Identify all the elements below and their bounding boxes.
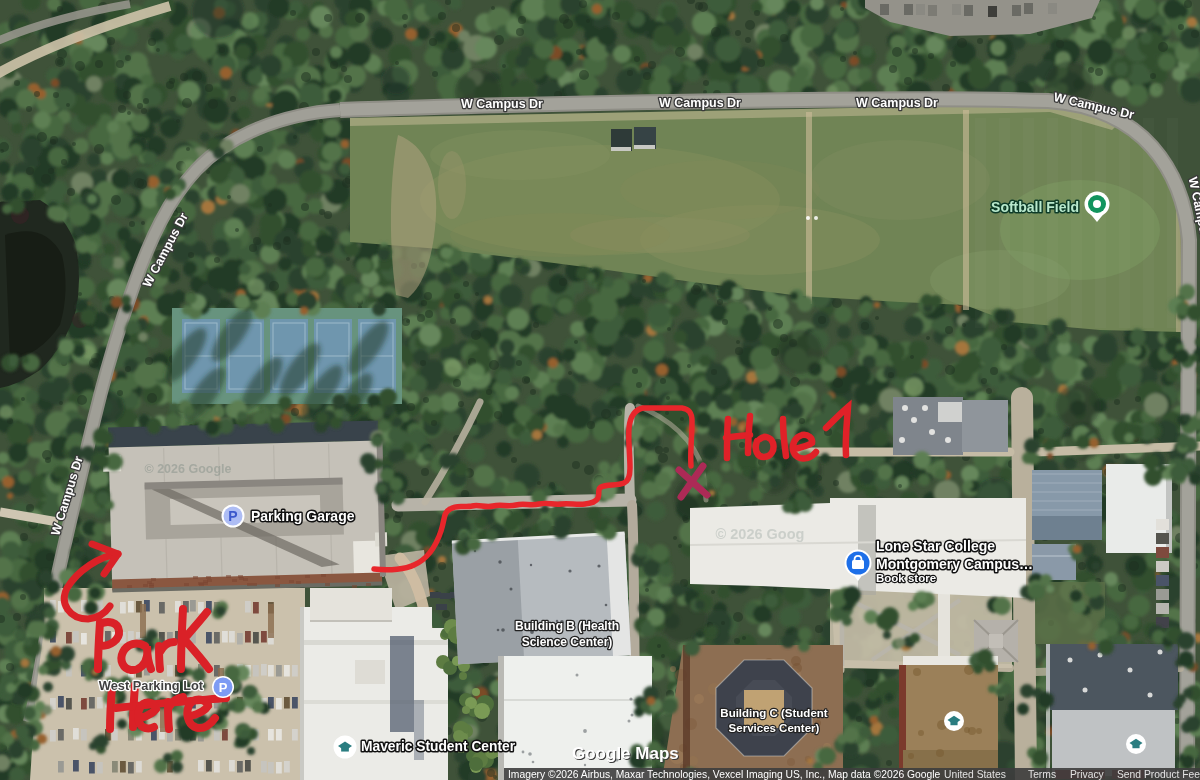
svg-text:Services Center): Services Center) xyxy=(729,722,820,734)
svg-text:Send Product Feedback: Send Product Feedback xyxy=(1117,769,1200,780)
svg-text:Parking Garage: Parking Garage xyxy=(251,508,355,524)
svg-text:Privacy: Privacy xyxy=(1070,769,1105,780)
svg-text:Building C (Student: Building C (Student xyxy=(720,707,827,719)
svg-text:Lone Star College: Lone Star College xyxy=(876,538,995,554)
svg-text:Maveric Student Center: Maveric Student Center xyxy=(361,739,516,754)
svg-text:Softball Field: Softball Field xyxy=(991,199,1079,215)
svg-text:Imagery ©2026 Airbus, Maxar Te: Imagery ©2026 Airbus, Maxar Technologies… xyxy=(508,769,941,780)
svg-text:Montgomery Campus…: Montgomery Campus… xyxy=(876,556,1033,572)
svg-text:Book store: Book store xyxy=(876,572,936,584)
svg-text:W Campus Dr: W Campus Dr xyxy=(461,97,543,111)
svg-text:© 2026 Google: © 2026 Google xyxy=(144,462,231,476)
svg-text:United States: United States xyxy=(944,769,1006,780)
svg-text:West Parking Lot: West Parking Lot xyxy=(99,678,204,693)
svg-text:Google Maps: Google Maps xyxy=(572,744,679,763)
svg-text:P: P xyxy=(219,680,228,695)
svg-text:© 2026 Goog: © 2026 Goog xyxy=(716,526,805,542)
svg-text:W Campus Dr: W Campus Dr xyxy=(856,96,938,110)
svg-text:W Campus Dr: W Campus Dr xyxy=(659,96,741,110)
svg-text:P: P xyxy=(228,508,237,524)
svg-text:Terms: Terms xyxy=(1028,769,1056,780)
svg-text:Science Center): Science Center) xyxy=(522,635,613,649)
svg-text:Building B (Health: Building B (Health xyxy=(515,619,619,633)
